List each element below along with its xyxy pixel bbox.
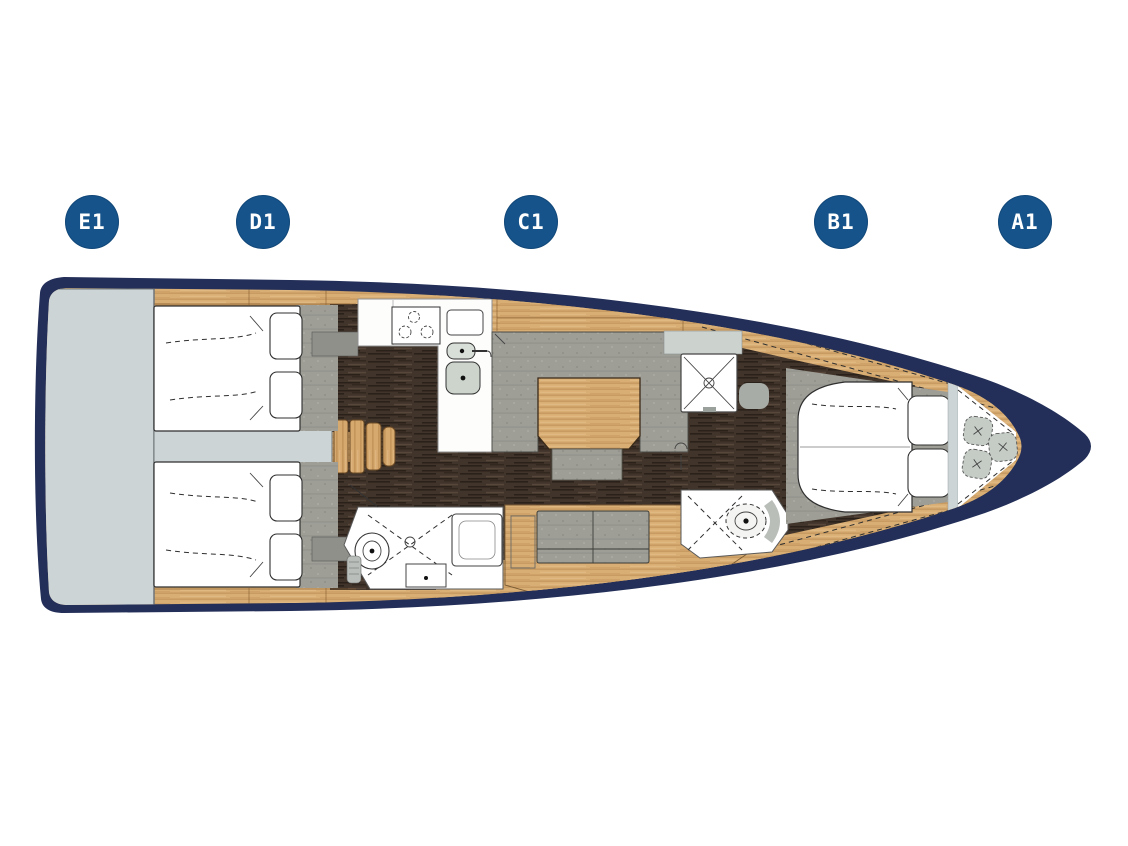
aft-cabin-port [154,286,358,431]
companionway-steps [334,420,395,473]
mid-head-toilet-icon [726,504,766,538]
forward-cabin [786,368,950,524]
swim-platform [34,289,154,607]
salon-table [538,378,640,449]
sail-bag-icon [988,432,1019,463]
stove-burners-icon [392,307,440,344]
mid-shower-seat [739,383,769,409]
forward-bed-pillow [908,449,950,497]
yacht-floorplan [0,0,1128,846]
counter-top [447,310,483,335]
aft-head-sink-icon [452,514,502,566]
salon-stool [552,449,622,480]
salon-bench [537,511,649,563]
forward-bed-pillow [908,396,950,445]
yacht-layout-screen: E1 D1 C1 B1 A1 [0,0,1128,846]
aft-cabin-starboard [154,462,358,607]
